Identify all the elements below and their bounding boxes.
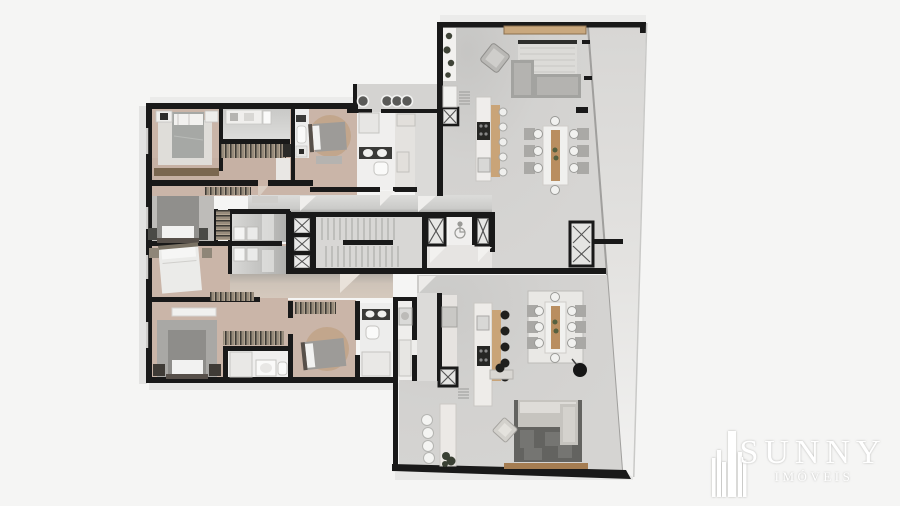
svg-text:SUNNY: SUNNY <box>739 434 886 471</box>
svg-text:IMÓVEIS: IMÓVEIS <box>775 469 854 484</box>
